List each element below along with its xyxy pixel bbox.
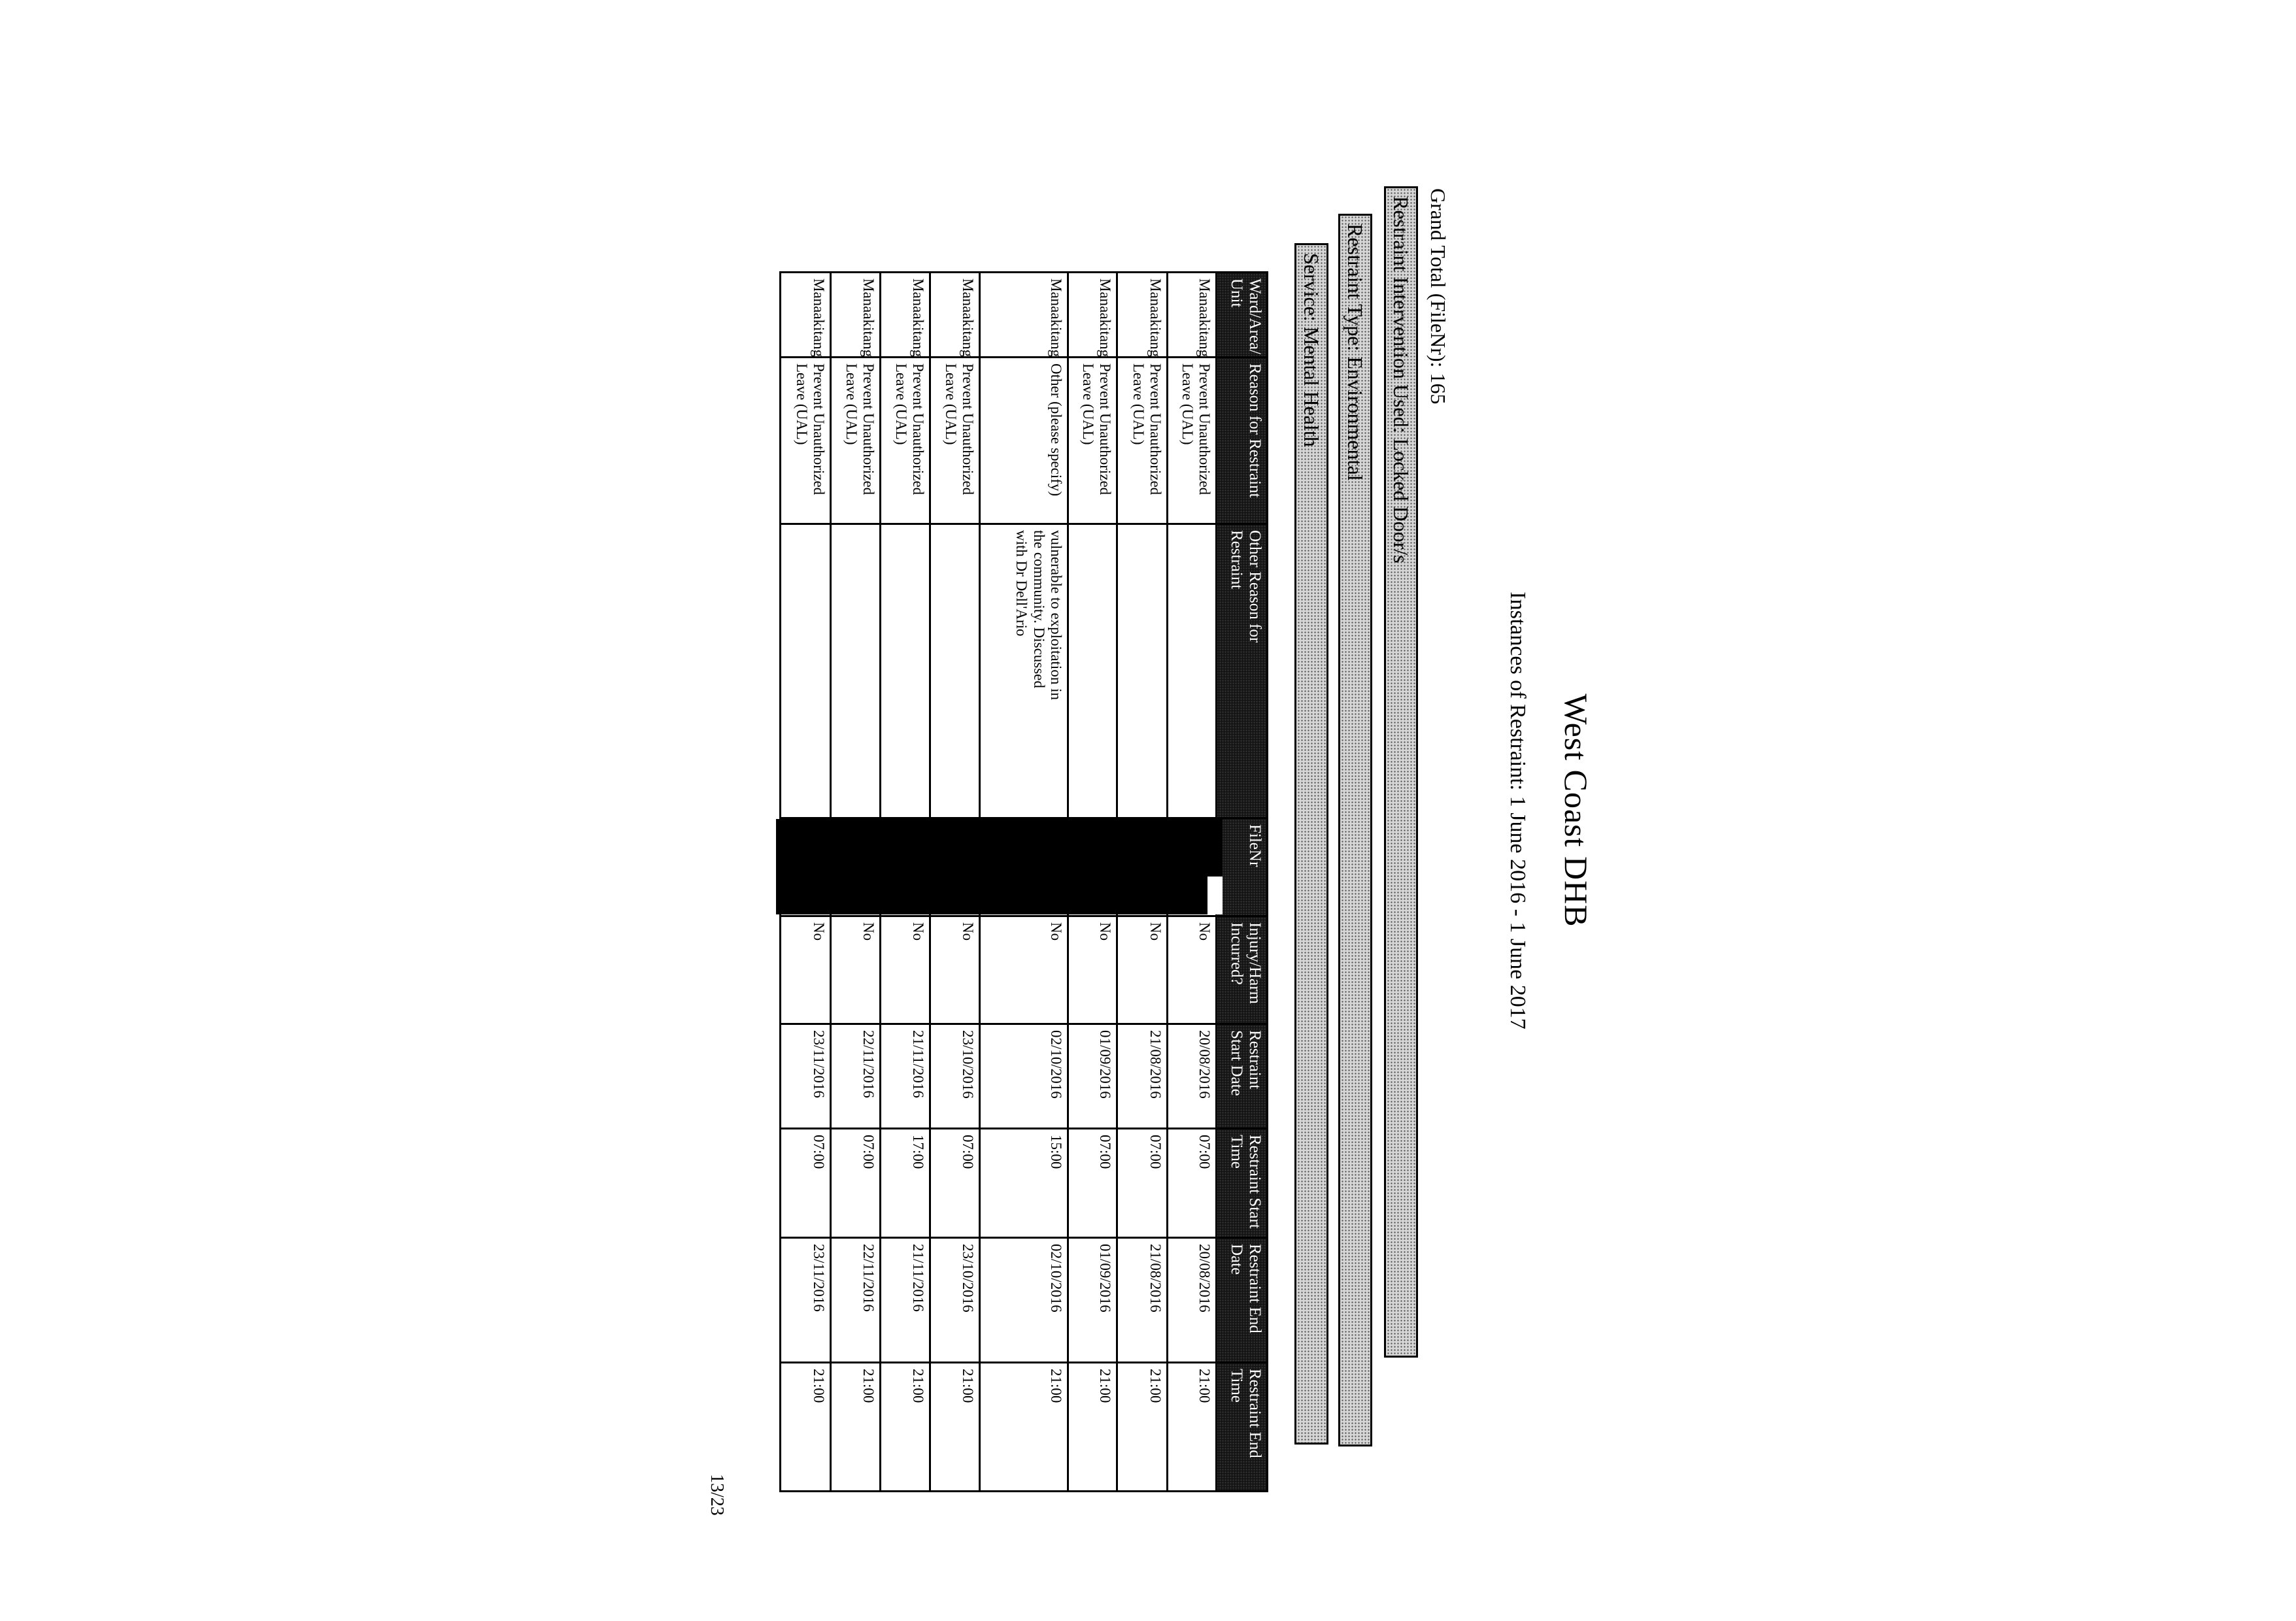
cell-reason: Prevent Unauthorized Leave (UAL): [1068, 358, 1117, 524]
header-ward-area-unit: Ward/Area/ Unit: [1217, 273, 1268, 358]
header-restraint-end-date: Restraint End Date: [1217, 1238, 1268, 1363]
cell-end-time: 21:00: [881, 1363, 930, 1492]
cell-other-reason: [1168, 524, 1217, 818]
cell-start-time: 07:00: [1168, 1129, 1217, 1238]
cell-end-date: 21/08/2016: [1117, 1238, 1168, 1363]
cell-start-date: 21/11/2016: [881, 1024, 930, 1129]
cell-ward: Manaakitanga: [1068, 273, 1117, 358]
page-number: 13/23: [706, 1474, 727, 1516]
cell-start-date: 23/11/2016: [781, 1024, 831, 1129]
cell-other-reason: [1117, 524, 1168, 818]
cell-ward: Manaakitanga: [881, 273, 930, 358]
cell-ward: Manaakitanga: [1168, 273, 1217, 358]
filenr-redaction-box: [776, 819, 1223, 914]
cell-injury: No: [980, 916, 1068, 1024]
header-reason-for-restraint: Reason for Restraint: [1217, 358, 1268, 524]
cell-end-time: 21:00: [1068, 1363, 1117, 1492]
page-title: West Coast DHB: [1557, 0, 1595, 1621]
header-other-reason: Other Reason for Restraint: [1217, 524, 1268, 818]
cell-reason: Prevent Unauthorized Leave (UAL): [1117, 358, 1168, 524]
cell-start-time: 15:00: [980, 1129, 1068, 1238]
cell-end-date: 02/10/2016: [980, 1238, 1068, 1363]
cell-start-date: 01/09/2016: [1068, 1024, 1117, 1129]
cell-end-time: 21:00: [781, 1363, 831, 1492]
cell-start-date: 22/11/2016: [831, 1024, 881, 1129]
cell-other-reason: [781, 524, 831, 818]
cell-reason: Prevent Unauthorized Leave (UAL): [1168, 358, 1217, 524]
scanned-page: West Coast DHB Instances of Restraint: 1…: [0, 0, 2296, 1621]
cell-ward: Manaakitanga: [930, 273, 980, 358]
cell-start-time: 07:00: [831, 1129, 881, 1238]
cell-reason: Prevent Unauthorized Leave (UAL): [881, 358, 930, 524]
cell-injury: No: [1117, 916, 1168, 1024]
cell-end-date: 20/08/2016: [1168, 1238, 1217, 1363]
cell-reason: Prevent Unauthorized Leave (UAL): [781, 358, 831, 524]
cell-injury: No: [781, 916, 831, 1024]
cell-other-reason: [831, 524, 881, 818]
header-filenr: FileNr: [1217, 818, 1268, 916]
cell-ward: Manaakitanga: [781, 273, 831, 358]
cell-injury: No: [1168, 916, 1217, 1024]
cell-ward: Manaakitanga: [1117, 273, 1168, 358]
cell-start-date: 20/08/2016: [1168, 1024, 1217, 1129]
section-bar-restraint-intervention: Restraint Intervention Used: Locked Door…: [1384, 186, 1418, 1358]
cell-other-reason: [1068, 524, 1117, 818]
cell-end-time: 21:00: [980, 1363, 1068, 1492]
cell-start-time: 17:00: [881, 1129, 930, 1238]
header-injury-harm: Injury/Harm Incurred?: [1217, 916, 1268, 1024]
cell-injury: No: [1068, 916, 1117, 1024]
header-restraint-start-time: Restraint Start Time: [1217, 1129, 1268, 1238]
cell-end-time: 21:00: [831, 1363, 881, 1492]
cell-start-date: 02/10/2016: [980, 1024, 1068, 1129]
table-header-row: Ward/Area/ Unit Reason for Restraint Oth…: [1217, 273, 1268, 1492]
cell-start-time: 07:00: [930, 1129, 980, 1238]
cell-ward: Manaakitanga: [831, 273, 881, 358]
cell-injury: No: [831, 916, 881, 1024]
page-subtitle: Instances of Restraint: 1 June 2016 - 1 …: [1505, 0, 1530, 1621]
cell-end-date: 23/10/2016: [930, 1238, 980, 1363]
cell-other-reason: [881, 524, 930, 818]
cell-reason: Prevent Unauthorized Leave (UAL): [831, 358, 881, 524]
cell-start-time: 07:00: [1068, 1129, 1117, 1238]
cell-reason: Prevent Unauthorized Leave (UAL): [930, 358, 980, 524]
cell-ward: Manaakitanga: [980, 273, 1068, 358]
cell-start-time: 07:00: [1117, 1129, 1168, 1238]
header-restraint-start-date: Restraint Start Date: [1217, 1024, 1268, 1129]
cell-other-reason: [930, 524, 980, 818]
cell-injury: No: [881, 916, 930, 1024]
cell-reason: Other (please specify): [980, 358, 1068, 524]
section-bar-restraint-type: Restraint Type: Environmental: [1338, 214, 1372, 1446]
section-bar-service: Service: Mental Health: [1294, 243, 1328, 1445]
cell-end-date: 23/11/2016: [781, 1238, 831, 1363]
filenr-redaction-notch: [1207, 877, 1223, 914]
rotated-document-content: West Coast DHB Instances of Restraint: 1…: [0, 0, 2296, 1621]
cell-start-date: 21/08/2016: [1117, 1024, 1168, 1129]
cell-end-time: 21:00: [1117, 1363, 1168, 1492]
header-restraint-end-time: Restraint End Time: [1217, 1363, 1268, 1492]
grand-total-line: Grand Total (FileNr): 165: [1426, 188, 1450, 404]
cell-end-date: 01/09/2016: [1068, 1238, 1117, 1363]
cell-start-time: 07:00: [781, 1129, 831, 1238]
cell-other-reason: vulnerable to exploitation in the commun…: [980, 524, 1068, 818]
cell-end-time: 21:00: [930, 1363, 980, 1492]
cell-end-date: 21/11/2016: [881, 1238, 930, 1363]
cell-start-date: 23/10/2016: [930, 1024, 980, 1129]
cell-injury: No: [930, 916, 980, 1024]
cell-end-time: 21:00: [1168, 1363, 1217, 1492]
cell-end-date: 22/11/2016: [831, 1238, 881, 1363]
